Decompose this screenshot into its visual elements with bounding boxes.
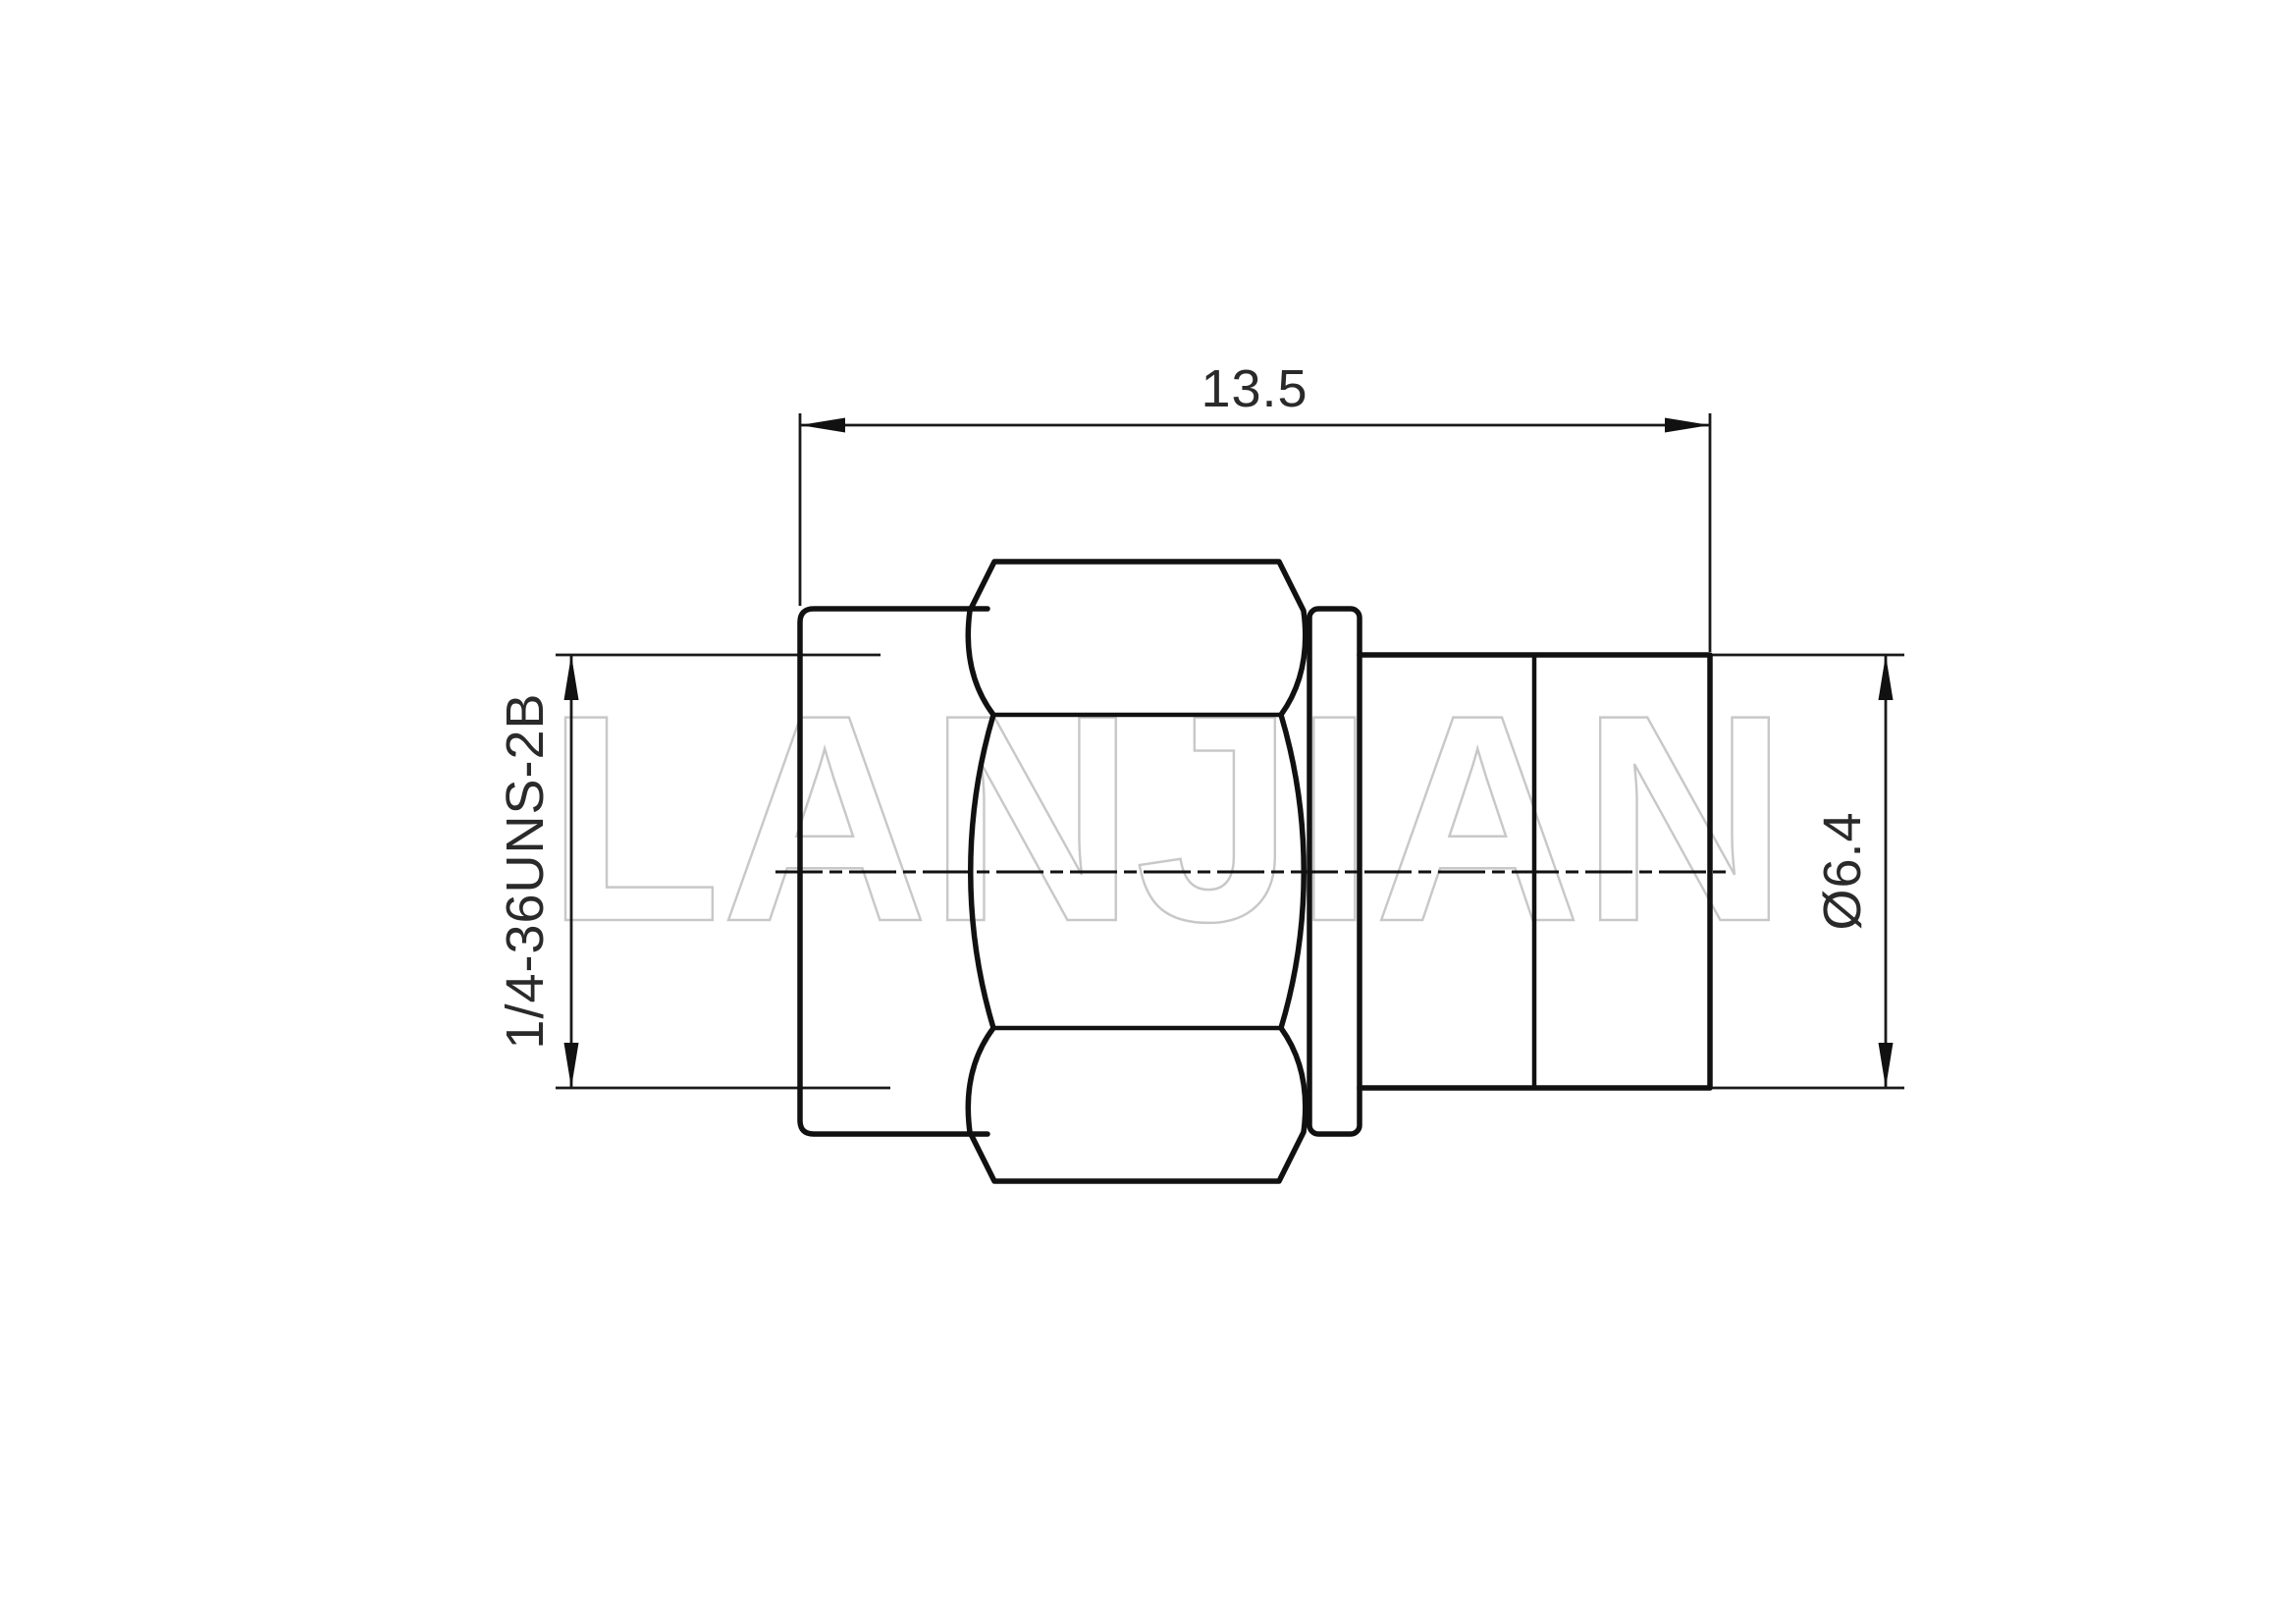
dimension-label-diameter: Ø6.4 — [1813, 811, 1872, 930]
drawing-canvas: LANJIAN 13.5 1/4-36UNS-2B — [0, 0, 2296, 1624]
dimension-label-thread: 1/4-36UNS-2B — [496, 692, 555, 1049]
watermark-text: LANJIAN — [547, 653, 1789, 983]
technical-drawing: LANJIAN 13.5 1/4-36UNS-2B — [0, 0, 2296, 1624]
dimension-label-length: 13.5 — [1201, 359, 1308, 418]
